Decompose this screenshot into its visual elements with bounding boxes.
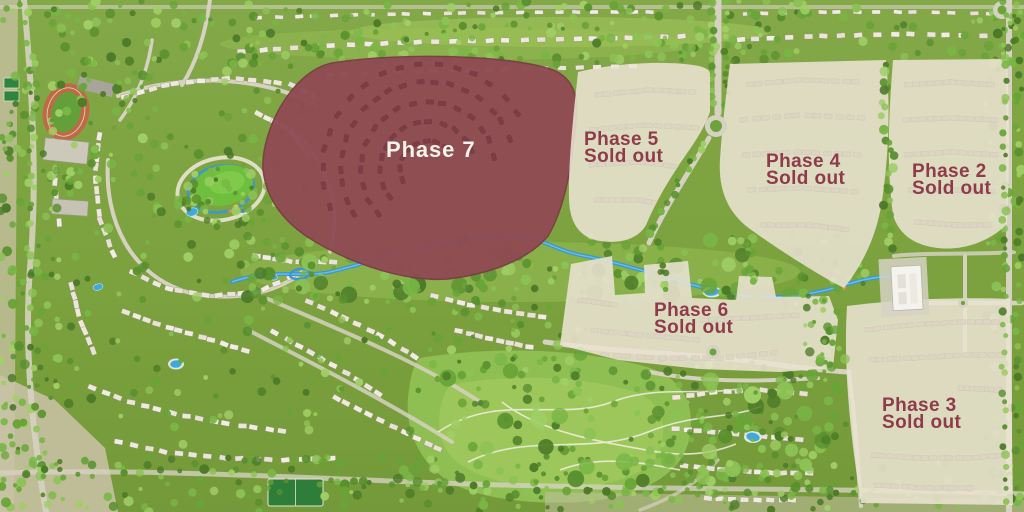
phase-4-label[interactable]: Phase 4 Sold out: [766, 153, 845, 187]
sports-court: [4, 91, 19, 101]
phase-status: Sold out: [584, 148, 663, 165]
phase-6-label[interactable]: Phase 6 Sold out: [654, 302, 733, 336]
phase-status: Sold out: [882, 414, 961, 431]
roundabout: [705, 115, 727, 137]
masterplan-map: Phase 7 Phase 5 Sold out Phase 4 Sold ou…: [0, 0, 1024, 512]
phase-name: Phase 7: [386, 139, 475, 161]
phase-status: Sold out: [912, 180, 991, 197]
roundabout: [958, 298, 968, 308]
phase-status: Sold out: [654, 319, 733, 336]
masterplan-aerial-render: [0, 0, 1024, 512]
phase-3-label[interactable]: Phase 3 Sold out: [882, 397, 961, 431]
school-building: [43, 138, 89, 164]
phase-status: Sold out: [766, 170, 845, 187]
phase-5-label[interactable]: Phase 5 Sold out: [584, 131, 663, 165]
sales-center-building: [878, 257, 929, 317]
roundabout: [706, 345, 720, 359]
phase-2-label[interactable]: Phase 2 Sold out: [912, 163, 991, 197]
phase-7-label[interactable]: Phase 7: [386, 139, 475, 161]
